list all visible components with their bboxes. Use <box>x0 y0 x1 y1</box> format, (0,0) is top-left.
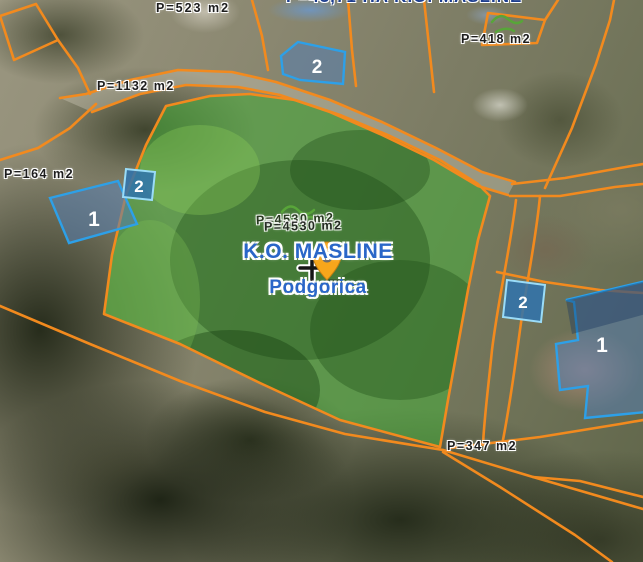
clipped-area-label: P=43,71 HA K.O. MASLINE <box>286 0 522 7</box>
grass-highlight <box>140 125 260 215</box>
cadastral-municipality-label: K.O. MASLINE <box>243 240 393 264</box>
badge-number: 2 <box>518 293 527 312</box>
annex-badge-right[interactable]: 2 <box>503 280 545 322</box>
building-number: 1 <box>596 334 608 357</box>
municipality-label: Podgorica <box>269 277 366 299</box>
area-label-top-left: P=523 m2 <box>156 1 230 15</box>
building-top[interactable]: 2 <box>281 42 345 84</box>
cadastral-map-viewport[interactable]: 1 2 2 2 1 <box>0 0 643 562</box>
annex-badge-left[interactable]: 2 <box>123 169 155 200</box>
building-number: 1 <box>88 208 100 231</box>
badge-number: 2 <box>134 177 143 196</box>
area-label-far-left: P=164 m2 <box>4 167 74 181</box>
area-label-bottom-right: P=347 m2 <box>447 439 517 453</box>
building-right[interactable]: 1 <box>556 281 643 418</box>
area-label-upper-road: P=1132 m2 <box>97 79 175 93</box>
area-label-top-right: P=418 m2 <box>461 32 531 46</box>
building-number: 2 <box>312 57 323 78</box>
tree-shadow <box>140 330 320 450</box>
area-label-selected-parcel: P=4530 m2 <box>264 218 343 233</box>
